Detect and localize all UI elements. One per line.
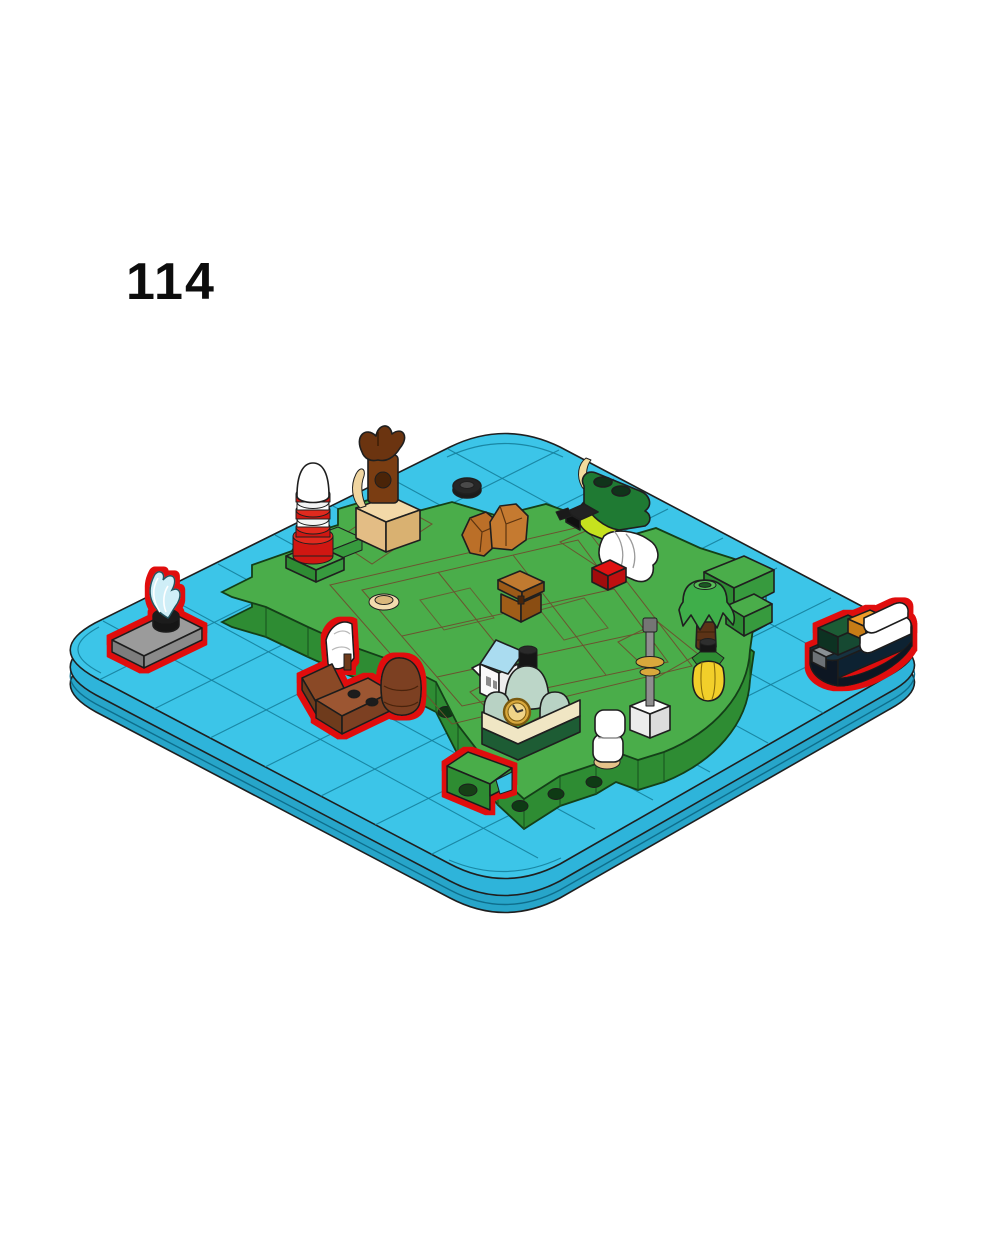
instruction-page: 114 [0,0,1005,1256]
gold-ring [640,668,660,676]
side-stud [586,777,602,788]
chest-latch [518,596,524,604]
side-stud [512,801,528,812]
treasure-chest [498,571,544,622]
mast-cap [643,618,657,632]
side-stud [548,789,564,800]
lighthouse-dome [297,463,329,503]
bird-figure [359,426,404,461]
white-barrels [593,710,625,769]
instruction-scene [0,0,1005,1256]
gold-ring [636,657,664,668]
pot-body [693,661,725,701]
tire-ring [453,478,481,498]
